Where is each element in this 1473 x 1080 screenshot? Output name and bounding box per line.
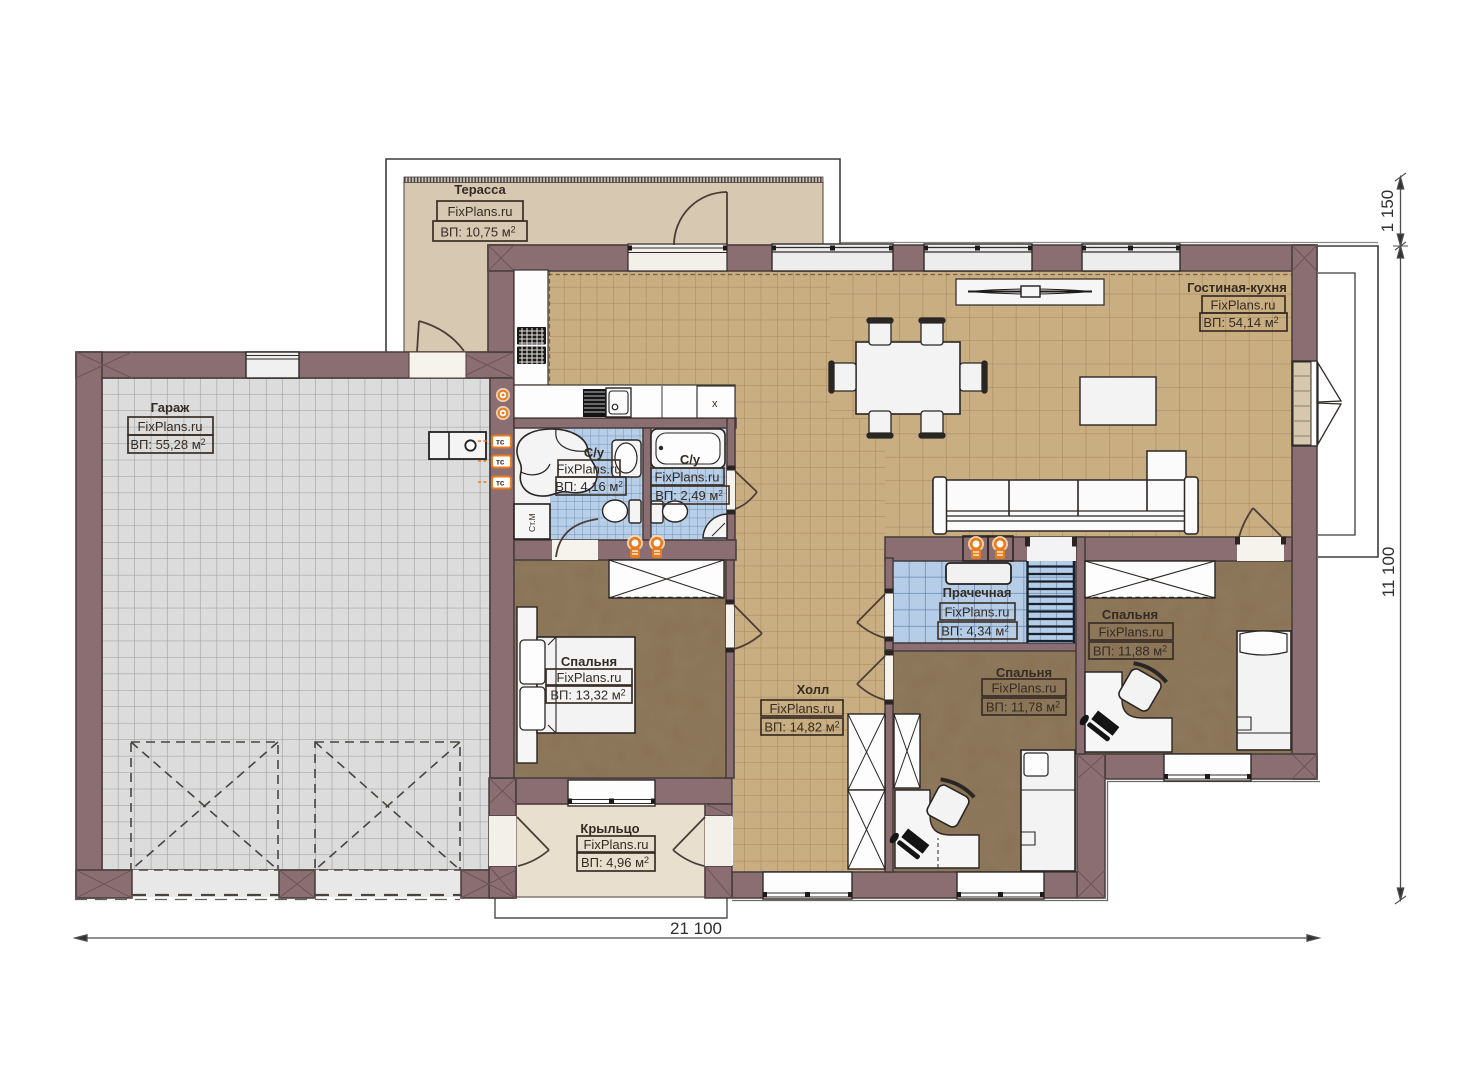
svg-text:FixPlans.ru: FixPlans.ru bbox=[944, 605, 1009, 620]
svg-text:С/у: С/у bbox=[680, 452, 701, 467]
svg-text:ВП: 11,88 м2: ВП: 11,88 м2 bbox=[1093, 644, 1167, 659]
svg-text:Прачечная: Прачечная bbox=[943, 585, 1012, 600]
svg-text:FixPlans.ru: FixPlans.ru bbox=[1098, 625, 1163, 640]
svg-text:FixPlans.ru: FixPlans.ru bbox=[991, 681, 1056, 696]
svg-text:21 100: 21 100 bbox=[670, 919, 722, 938]
svg-text:Терасса: Терасса bbox=[454, 182, 506, 197]
svg-text:FixPlans.ru: FixPlans.ru bbox=[769, 701, 834, 716]
svg-text:FixPlans.ru: FixPlans.ru bbox=[556, 462, 621, 477]
svg-text:ВП: 14,82 м2: ВП: 14,82 м2 bbox=[764, 720, 839, 735]
svg-text:FixPlans.ru: FixPlans.ru bbox=[654, 470, 719, 485]
svg-text:ВП: 13,32 м2: ВП: 13,32 м2 bbox=[550, 688, 625, 703]
svg-text:тс: тс bbox=[496, 458, 505, 467]
svg-text:Крыльцо: Крыльцо bbox=[580, 821, 639, 836]
svg-text:ВП: 55,28 м2: ВП: 55,28 м2 bbox=[130, 437, 205, 452]
svg-text:тс: тс bbox=[496, 479, 505, 488]
svg-text:тс: тс bbox=[496, 438, 505, 447]
svg-text:FixPlans.ru: FixPlans.ru bbox=[556, 670, 621, 685]
svg-text:ВП: 4,96 м2: ВП: 4,96 м2 bbox=[581, 855, 649, 870]
svg-text:ВП: 11,78 м2: ВП: 11,78 м2 bbox=[986, 700, 1060, 715]
svg-text:ВП: 4,16 м2: ВП: 4,16 м2 bbox=[555, 479, 623, 494]
svg-text:11 100: 11 100 bbox=[1379, 547, 1398, 598]
svg-text:Ст.М: Ст.М bbox=[527, 513, 537, 532]
svg-text:Спальня: Спальня bbox=[561, 654, 617, 669]
svg-text:ВП: 4,34 м2: ВП: 4,34 м2 bbox=[941, 624, 1009, 639]
svg-text:FixPlans.ru: FixPlans.ru bbox=[137, 419, 202, 434]
svg-text:FixPlans.ru: FixPlans.ru bbox=[447, 204, 512, 219]
svg-text:Холл: Холл bbox=[797, 682, 830, 697]
svg-text:ВП: 54,14 м2: ВП: 54,14 м2 bbox=[1203, 315, 1278, 330]
svg-text:FixPlans.ru: FixPlans.ru bbox=[1210, 298, 1275, 313]
svg-text:ВП: 2,49 м2: ВП: 2,49 м2 bbox=[655, 488, 723, 503]
svg-text:Гостиная-кухня: Гостиная-кухня bbox=[1187, 280, 1287, 295]
svg-text:1 150: 1 150 bbox=[1378, 190, 1397, 233]
svg-text:С/у: С/у bbox=[584, 445, 605, 460]
svg-text:Спальня: Спальня bbox=[1102, 607, 1158, 622]
svg-text:x: x bbox=[712, 398, 718, 410]
svg-text:Спальня: Спальня bbox=[996, 665, 1052, 680]
svg-text:ВП: 10,75 м2: ВП: 10,75 м2 bbox=[440, 225, 515, 240]
svg-text:Гараж: Гараж bbox=[151, 400, 191, 415]
svg-text:FixPlans.ru: FixPlans.ru bbox=[583, 837, 648, 852]
